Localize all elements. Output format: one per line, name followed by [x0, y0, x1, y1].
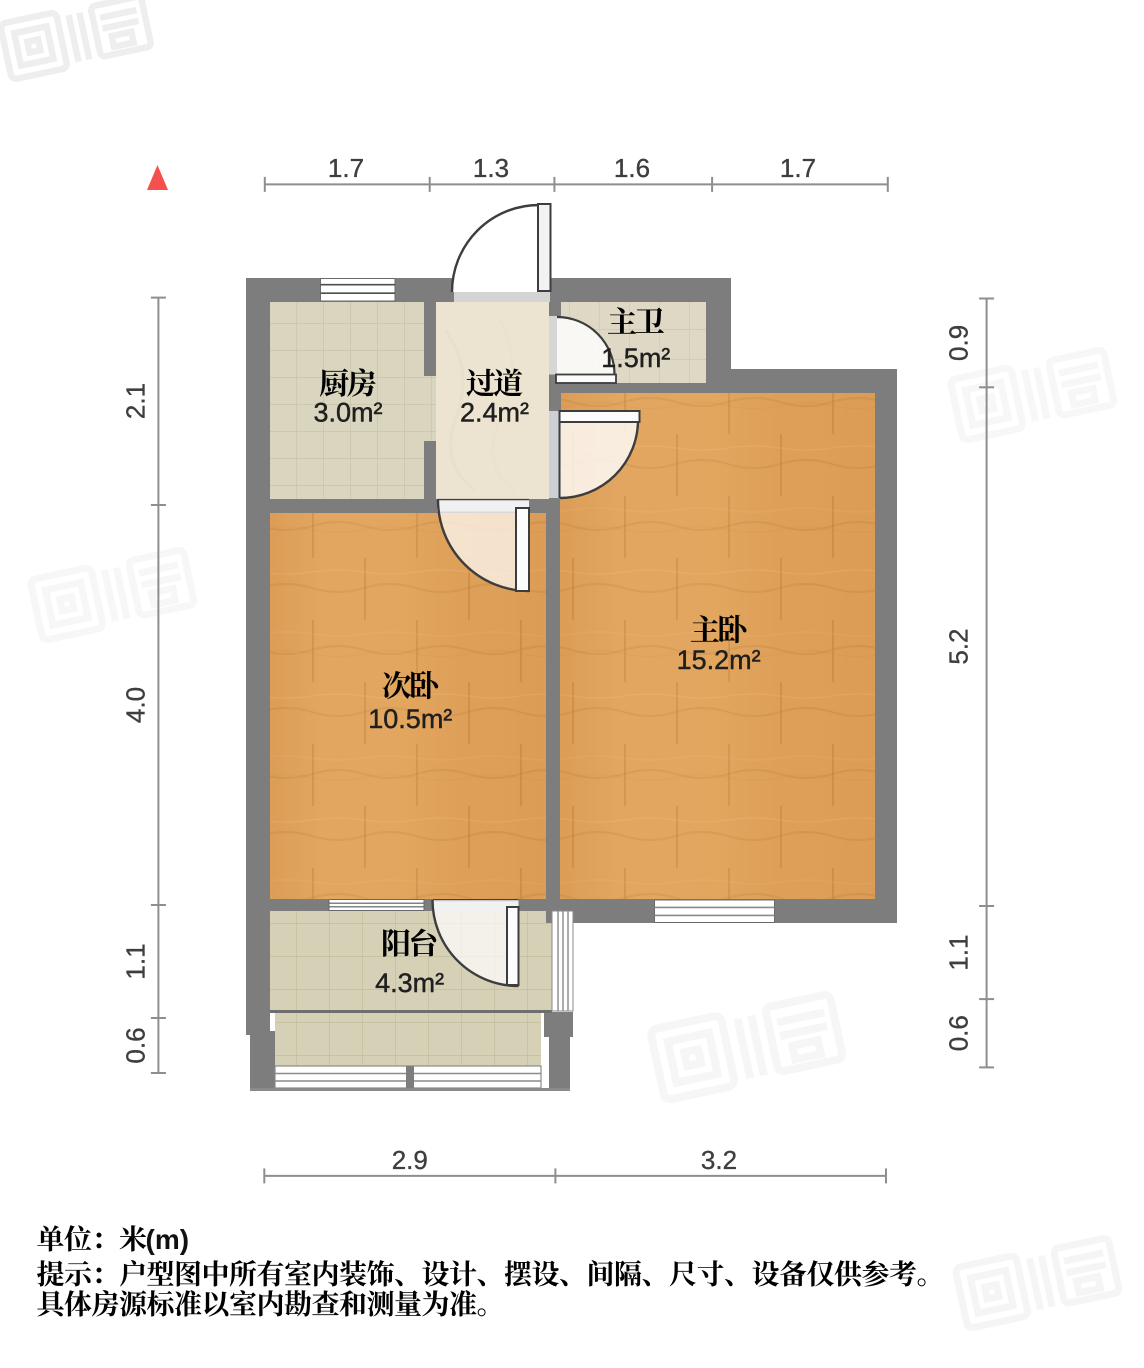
svg-text:1.1: 1.1 [121, 943, 151, 979]
svg-text:4.3m²: 4.3m² [375, 968, 444, 998]
svg-text:3.0m²: 3.0m² [313, 398, 382, 428]
svg-text:(m): (m) [146, 1224, 190, 1255]
svg-text:1.5m²: 1.5m² [601, 343, 670, 373]
svg-text:0.9: 0.9 [944, 325, 974, 361]
svg-text:1.7: 1.7 [780, 153, 816, 183]
svg-text:1.6: 1.6 [614, 153, 650, 183]
svg-text:2.4m²: 2.4m² [460, 398, 529, 428]
svg-text:5.2: 5.2 [944, 629, 974, 665]
svg-text:15.2m²: 15.2m² [677, 645, 761, 675]
svg-text:1.3: 1.3 [473, 153, 509, 183]
svg-text:2.1: 2.1 [121, 383, 151, 419]
svg-text:3.2: 3.2 [701, 1145, 737, 1175]
svg-text:10.5m²: 10.5m² [368, 704, 452, 734]
svg-text:1.7: 1.7 [328, 153, 364, 183]
svg-text:4.0: 4.0 [121, 687, 151, 723]
svg-text:0.6: 0.6 [944, 1015, 974, 1051]
svg-text:0.6: 0.6 [121, 1027, 151, 1063]
svg-text:1.1: 1.1 [944, 935, 974, 971]
svg-text:2.9: 2.9 [392, 1145, 428, 1175]
